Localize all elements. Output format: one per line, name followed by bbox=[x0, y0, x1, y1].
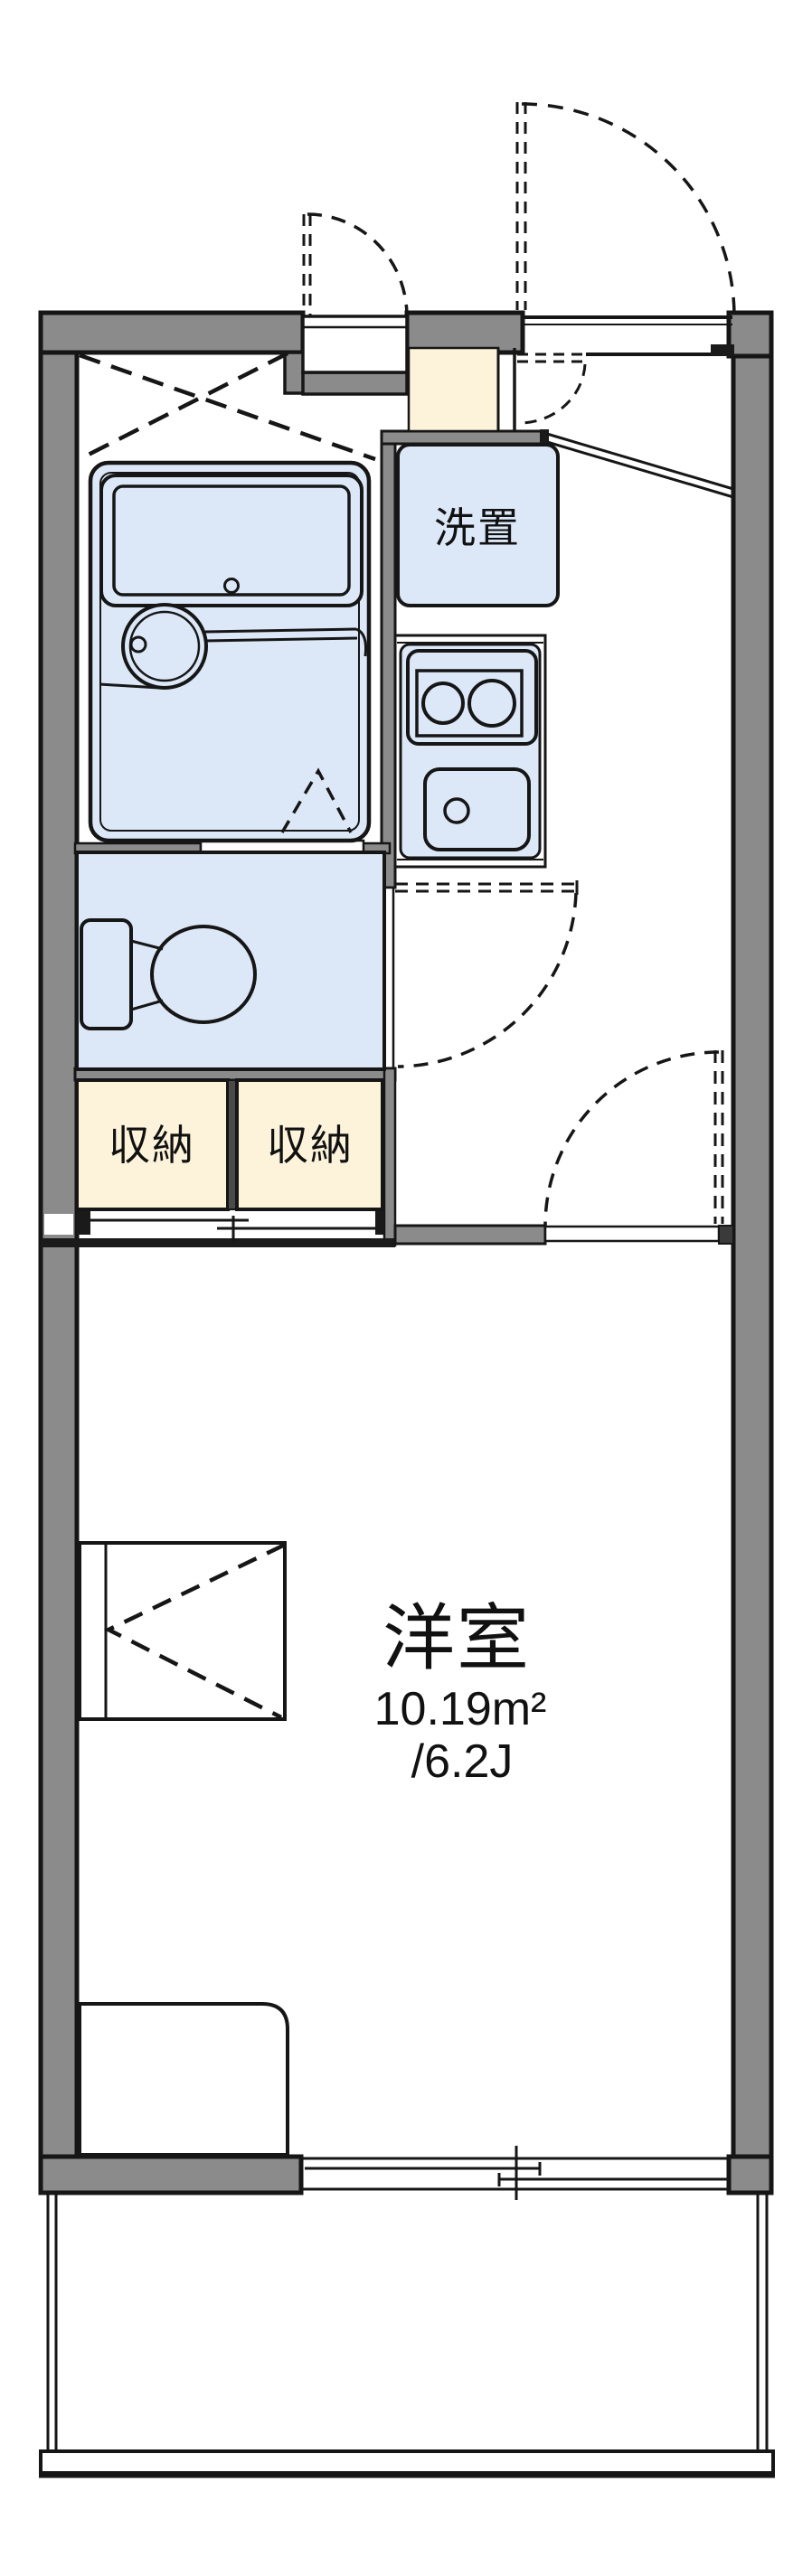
kitchen-sink bbox=[425, 769, 529, 850]
washer-label: 洗置 bbox=[434, 504, 521, 551]
floor-plan: 洗置 収納 収納 bbox=[0, 0, 812, 2576]
counter-symbol bbox=[80, 2004, 288, 2155]
washer-space: 洗置 bbox=[398, 445, 558, 606]
burner-left bbox=[423, 683, 463, 723]
unit-bathroom bbox=[90, 463, 369, 841]
partition-kitchen bbox=[382, 431, 395, 888]
room-area-m2: 10.19m² bbox=[374, 1683, 547, 1735]
outer-wall-bottom-left bbox=[41, 2157, 301, 2193]
outer-wall-top-mid bbox=[407, 313, 523, 353]
room-top-wall bbox=[395, 1226, 545, 1244]
room-wall-under-storage bbox=[41, 1238, 395, 1247]
genkan-floor bbox=[409, 348, 498, 431]
room-area-jo: /6.2J bbox=[411, 1735, 514, 1788]
storage-side-post bbox=[384, 1068, 395, 1246]
toilet-bowl bbox=[152, 926, 255, 1022]
kitchen bbox=[395, 635, 545, 867]
closet-door-pocket bbox=[44, 1214, 73, 1235]
toilet-room bbox=[77, 852, 384, 1069]
toilet-tank bbox=[81, 920, 131, 1029]
storage-left-label: 収納 bbox=[109, 1122, 195, 1169]
closet-door-post-right bbox=[375, 1211, 384, 1235]
room-door-jamb bbox=[719, 1226, 733, 1244]
outer-wall-left bbox=[41, 313, 77, 2193]
burner-right bbox=[469, 681, 515, 726]
balcony-railing bbox=[41, 2451, 773, 2473]
outer-wall-bottom-right bbox=[729, 2157, 771, 2193]
outer-wall-right bbox=[733, 313, 771, 2193]
room-door-threshold bbox=[545, 1227, 719, 1241]
sink-drain bbox=[445, 799, 468, 823]
floor-plan-page: 洗置 収納 収納 bbox=[0, 0, 812, 2576]
storage-right-label: 収納 bbox=[267, 1122, 354, 1169]
outer-wall-top-left bbox=[41, 313, 303, 353]
partition-washer-top bbox=[382, 431, 547, 444]
room-name-label: 洋室 bbox=[382, 1598, 531, 1678]
outer-wall-top-right bbox=[729, 313, 771, 356]
closet-door-post-left bbox=[77, 1211, 90, 1235]
entrance-recess bbox=[303, 316, 407, 372]
bathtub-drain bbox=[225, 579, 239, 593]
entrance-jamb-cap bbox=[711, 344, 734, 356]
entrance-recess-band bbox=[303, 372, 407, 394]
basin-faucet bbox=[131, 637, 146, 652]
